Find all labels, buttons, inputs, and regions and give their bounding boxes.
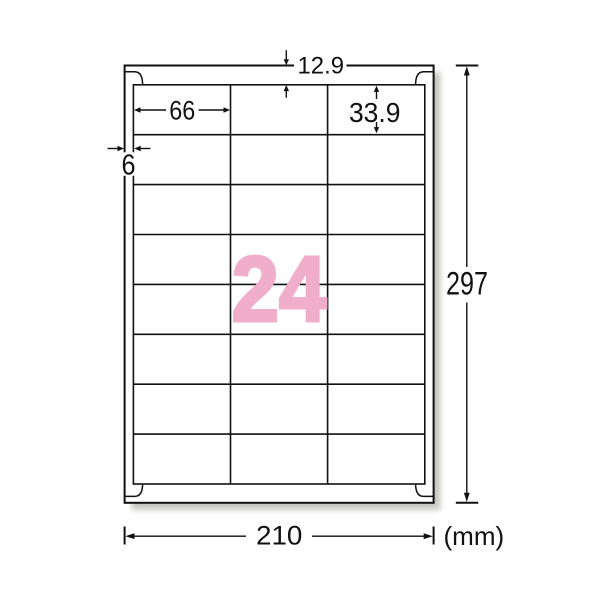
svg-text:(mm): (mm) [444, 521, 505, 551]
svg-text:33.9: 33.9 [349, 97, 401, 128]
svg-text:66: 66 [169, 96, 195, 126]
svg-text:297: 297 [446, 266, 488, 302]
svg-text:12.9: 12.9 [298, 53, 345, 80]
svg-text:24: 24 [232, 237, 327, 341]
svg-text:210: 210 [256, 521, 302, 551]
svg-text:6: 6 [122, 150, 136, 182]
